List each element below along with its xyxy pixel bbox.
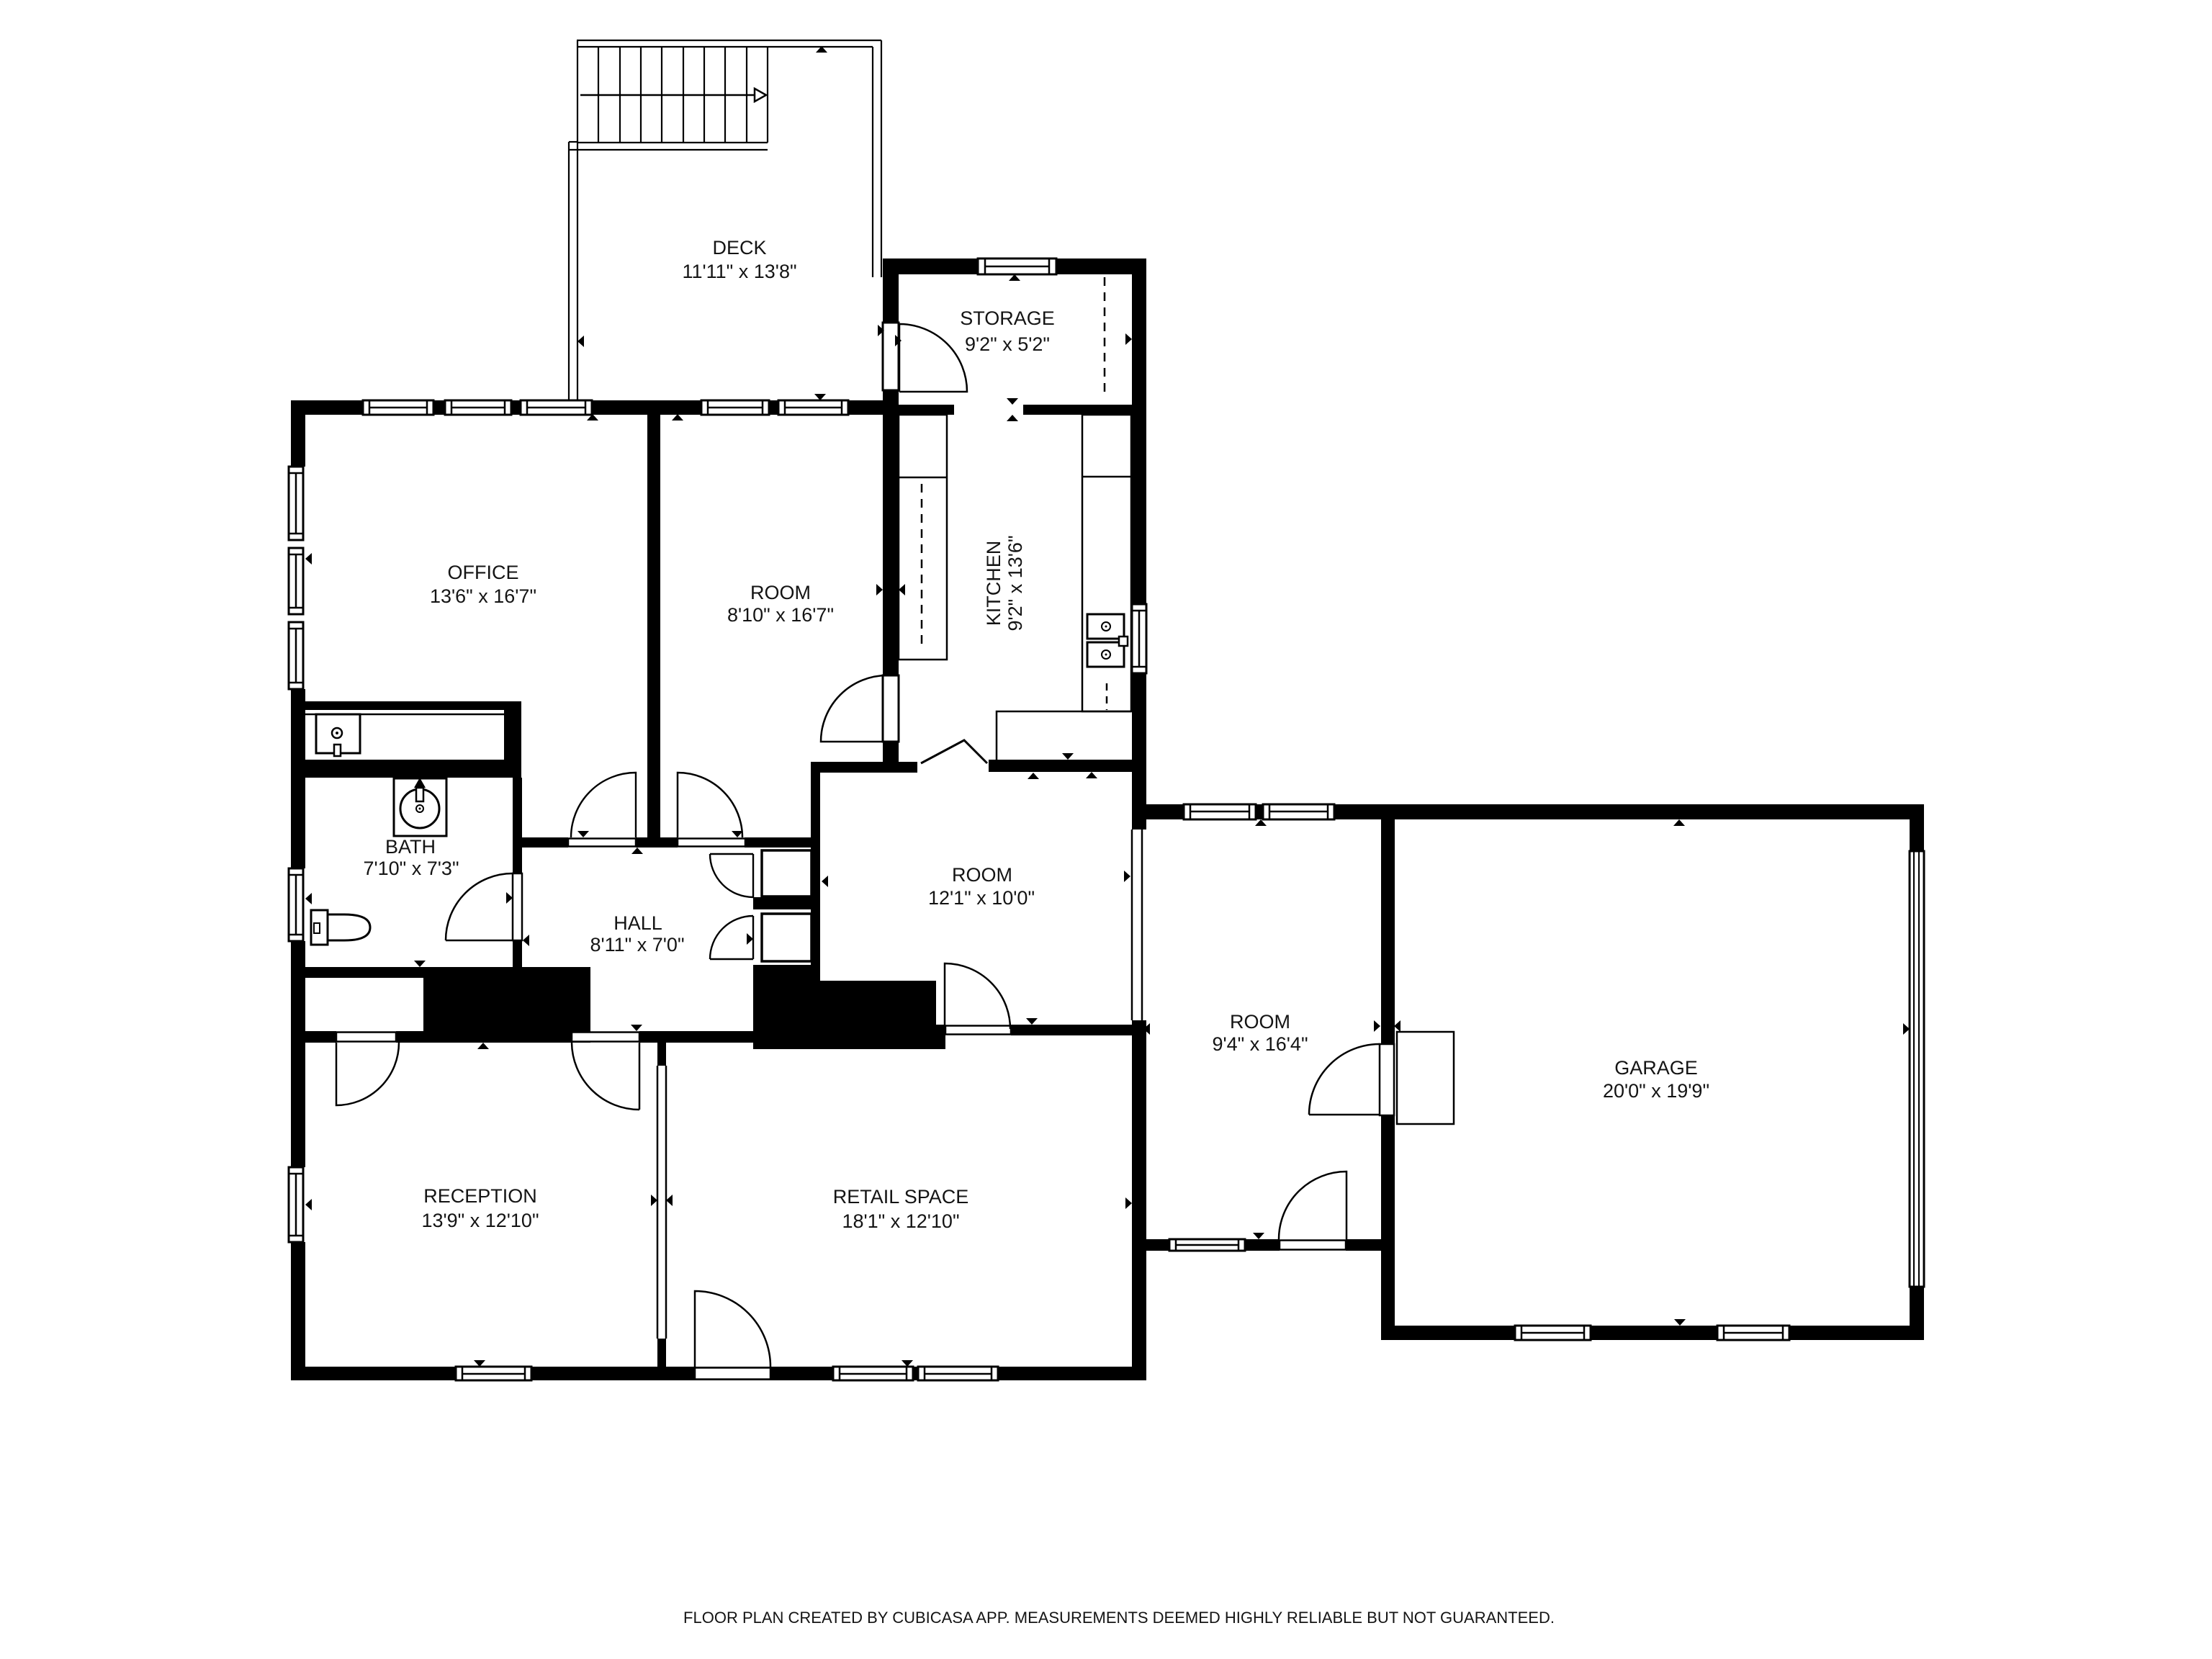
svg-text:ROOM: ROOM (750, 582, 811, 603)
svg-text:20'0" x 19'9": 20'0" x 19'9" (1603, 1080, 1709, 1102)
svg-text:9'2" x 13'6": 9'2" x 13'6" (1004, 535, 1026, 631)
svg-text:OFFICE: OFFICE (448, 562, 519, 583)
svg-text:KITCHEN: KITCHEN (983, 541, 1004, 626)
svg-text:8'11" x 7'0": 8'11" x 7'0" (590, 934, 684, 956)
svg-text:DECK: DECK (712, 237, 766, 258)
svg-text:18'1" x 12'10": 18'1" x 12'10" (842, 1210, 959, 1232)
svg-text:9'4" x 16'4": 9'4" x 16'4" (1212, 1033, 1308, 1055)
svg-text:8'10" x 16'7": 8'10" x 16'7" (727, 604, 834, 626)
svg-text:HALL: HALL (613, 912, 662, 934)
svg-text:RETAIL SPACE: RETAIL SPACE (833, 1186, 969, 1208)
svg-text:BATH: BATH (385, 836, 436, 858)
svg-text:GARAGE: GARAGE (1614, 1057, 1698, 1079)
svg-text:12'1" x 10'0": 12'1" x 10'0" (928, 887, 1035, 909)
svg-text:9'2" x 5'2": 9'2" x 5'2" (965, 333, 1050, 355)
svg-text:13'9" x 12'10": 13'9" x 12'10" (421, 1210, 539, 1231)
svg-text:7'10" x 7'3": 7'10" x 7'3" (363, 858, 459, 879)
svg-text:ROOM: ROOM (952, 864, 1012, 886)
svg-text:STORAGE: STORAGE (960, 307, 1055, 329)
svg-text:RECEPTION: RECEPTION (423, 1185, 537, 1207)
svg-text:ROOM: ROOM (1230, 1011, 1290, 1033)
svg-text:FLOOR PLAN CREATED BY CUBICASA: FLOOR PLAN CREATED BY CUBICASA APP. MEAS… (683, 1609, 1555, 1627)
svg-text:11'11" x 13'8": 11'11" x 13'8" (682, 261, 796, 282)
svg-text:13'6" x 16'7": 13'6" x 16'7" (430, 585, 536, 607)
